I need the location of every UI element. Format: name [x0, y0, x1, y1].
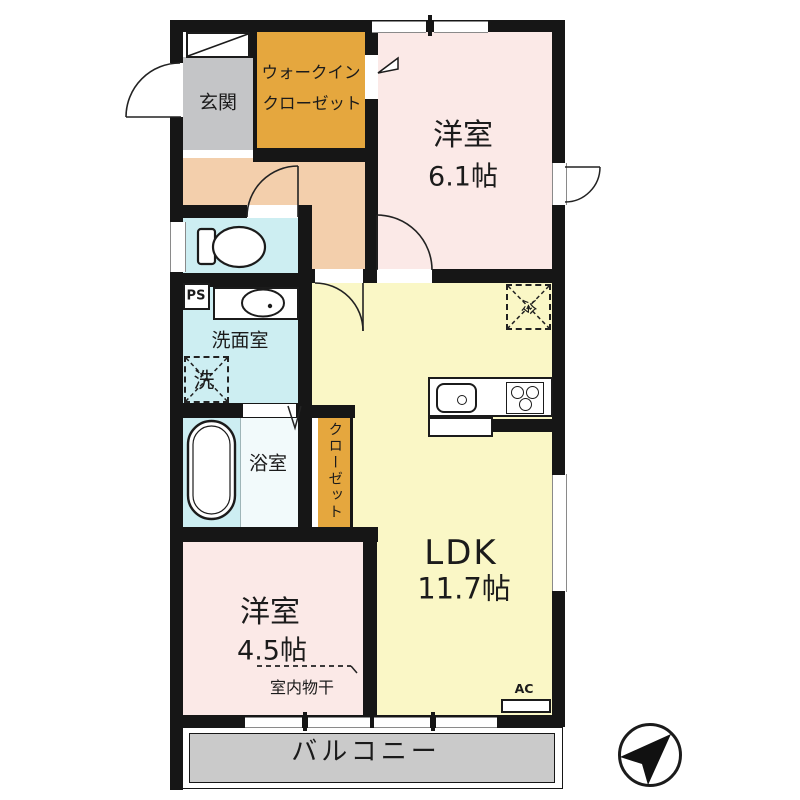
washer-label: 洗 [194, 371, 215, 392]
bedroom2-balcony-window-pane1 [245, 717, 302, 728]
floor-plan: 玄関 ウォークイン クローゼット 洋室 6.1帖 洗面室 洗 浴室 クローゼット… [0, 0, 800, 800]
bedroom2-balcony-window-pane2 [308, 717, 370, 728]
closet-label: クローゼット [327, 422, 342, 521]
bedroom1-top-window-pane2 [434, 21, 488, 33]
ldk-balcony-window-pane2 [436, 717, 497, 728]
indoor-laundry-label: 室内物干 [270, 680, 334, 696]
bedroom1-size-label: 6.1帖 [428, 164, 498, 191]
wall-toilet-top [183, 205, 247, 218]
bedroom2-size-label: 4.5帖 [237, 638, 307, 665]
bedroom1-window-arc [565, 167, 600, 202]
kitchen-sink-drain [457, 395, 467, 405]
bedroom1-top-window-pane1 [372, 21, 426, 33]
bathroom-door-opening [243, 404, 296, 417]
ldk-balcony-window-tick [431, 712, 435, 731]
stove-burner-2 [526, 386, 539, 399]
balcony-label: バルコニー [291, 739, 440, 765]
ac-unit-box [501, 699, 551, 713]
ldk-right-window-tick-top [552, 470, 565, 475]
ldk-right-window [552, 474, 567, 592]
wall-wic-bottom [253, 148, 378, 162]
compass-north-arrow [620, 734, 671, 785]
ldk-name-label: LDK [424, 536, 497, 570]
wall-wet-bottom [170, 527, 378, 542]
ps-label: PS [187, 290, 206, 303]
wall-bedroom2-ldk [363, 527, 377, 715]
fridge-label: 冷 [520, 299, 536, 315]
kitchen-under-counter [428, 417, 493, 437]
front-door-opening [170, 63, 183, 117]
wall-wet-right [298, 205, 312, 542]
toilet-left-window [170, 222, 186, 272]
toilet-room [183, 218, 298, 273]
genkan-label: 玄関 [199, 94, 237, 113]
ldk-balcony-window-pane1 [374, 717, 430, 728]
ldk-size-label: 11.7帖 [417, 575, 511, 604]
ac-label: AC [515, 683, 534, 696]
bedroom2-name-label: 洋室 [240, 598, 300, 628]
wall-top [170, 20, 565, 32]
kitchen-partition-bar [492, 419, 553, 432]
wic-label-line2: クローゼット [263, 96, 362, 113]
compass-circle [620, 725, 681, 786]
shoe-cabinet [186, 32, 250, 58]
bathroom-label: 浴室 [249, 455, 287, 474]
toilet-door-opening [247, 205, 298, 218]
ldk-door-opening [315, 269, 363, 283]
wic-label-line1: ウォークイン [262, 65, 361, 82]
bedroom1-door-opening [377, 269, 432, 283]
bedroom1-top-window-tick [428, 15, 432, 36]
stove-burner-3 [519, 398, 532, 411]
bedroom2-balcony-window-tick [303, 712, 307, 731]
wall-closet-top [305, 405, 355, 418]
stove-burner-1 [511, 386, 524, 399]
wall-right [552, 20, 565, 727]
vanity-counter [213, 287, 299, 320]
ldk-right-window-tick-bottom [552, 591, 565, 596]
bathroom-tub-zone [183, 417, 240, 527]
wall-genkan-wic-line [253, 32, 257, 148]
wall-closet-right [350, 418, 353, 527]
wall-left [170, 20, 183, 790]
genkan-threshold [183, 150, 253, 158]
wic-door-opening [365, 55, 378, 99]
bedroom1-right-window [552, 163, 567, 205]
washroom-label: 洗面室 [211, 332, 268, 351]
walk-in-closet-room [257, 32, 365, 148]
bedroom1-name-label: 洋室 [433, 121, 493, 151]
